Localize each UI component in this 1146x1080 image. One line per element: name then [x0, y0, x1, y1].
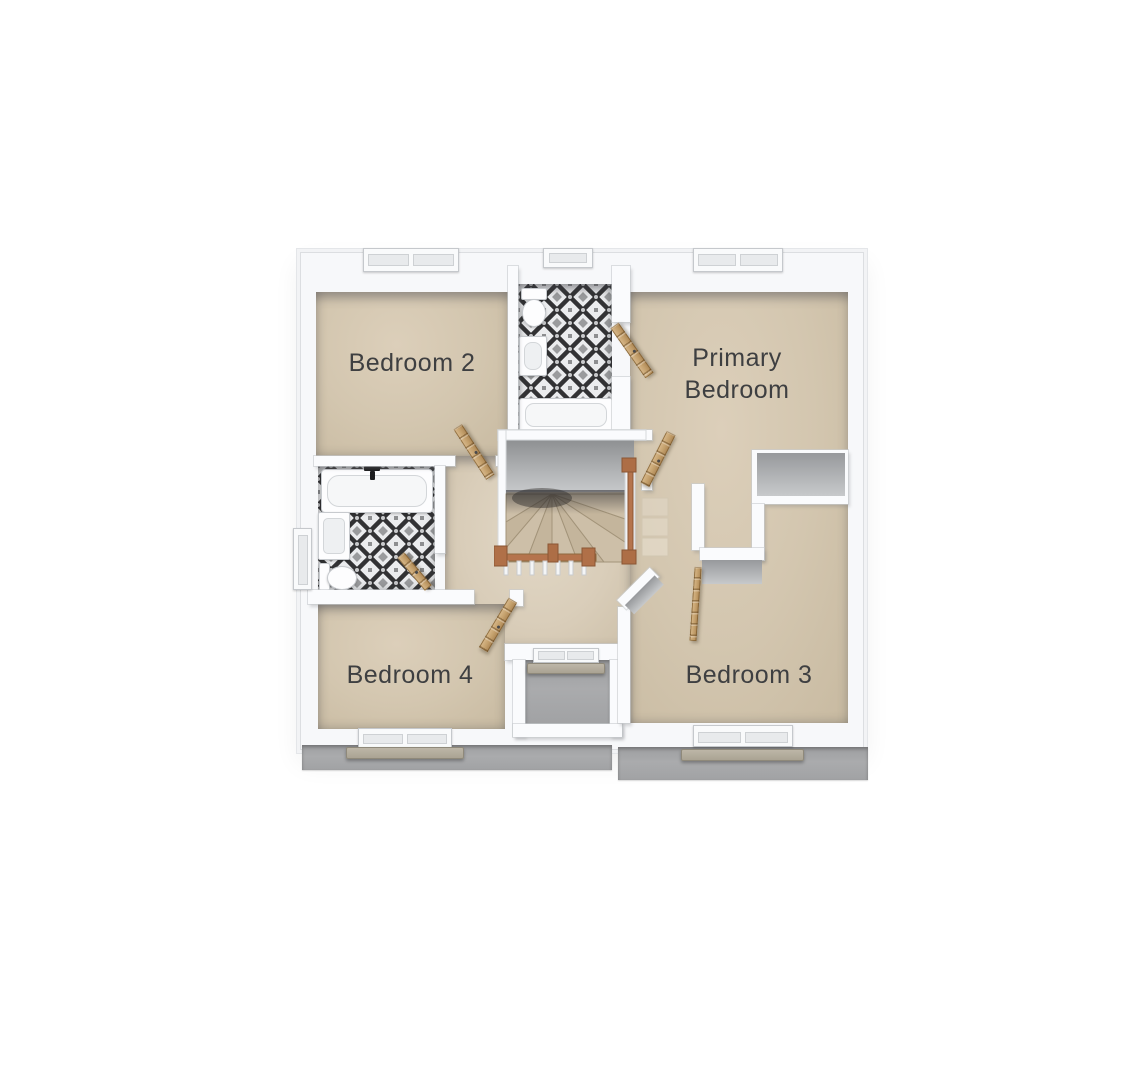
wall-bedroom3-left: [618, 607, 630, 723]
window-bedroom-4: [358, 728, 452, 748]
staircase: [494, 428, 676, 580]
bathtub-tap-spout: [370, 471, 375, 480]
bedroom-4-stone-sill: [346, 747, 464, 759]
wall-bedroom3-entry-top-face: [702, 560, 762, 584]
bay-bottom-wall: [513, 724, 622, 737]
landing-window: [533, 648, 599, 663]
bedroom-3-stone-sill: [681, 749, 804, 761]
window-bedroom-3: [693, 725, 793, 747]
room-label-bedroom-3: Bedroom 3: [669, 659, 829, 691]
bathroom-toilet: [327, 566, 357, 590]
ensuite-toilet: [522, 299, 546, 327]
wall-primary-south-stub: [692, 484, 704, 550]
window-primary-bedroom: [693, 248, 783, 272]
window-bathroom: [293, 528, 312, 590]
ensuite-basin-bowl: [524, 342, 542, 370]
floor-plan: Bedroom 2 Primary Bedroom Bedroom 4 Bedr…: [300, 252, 866, 786]
wall-divider-gray-face: [757, 453, 845, 496]
ensuite-bathtub-inner: [525, 403, 607, 427]
wall-bedroom3-entry-top: [700, 548, 764, 560]
wall-bathroom-bedroom4: [308, 590, 474, 604]
bathroom-basin-bowl: [323, 518, 345, 554]
wall-ensuite-primary-upper: [612, 266, 630, 322]
room-label-primary-bedroom: Primary Bedroom: [677, 342, 797, 406]
window-ensuite: [543, 248, 593, 268]
room-label-bedroom-4: Bedroom 4: [330, 659, 490, 691]
room-label-bedroom-2: Bedroom 2: [332, 347, 492, 379]
bathroom-bathtub-inner: [327, 475, 427, 507]
wall-bedroom2-bottom: [314, 456, 455, 466]
landing-window-stone-sill: [527, 663, 605, 674]
window-bedroom-2: [363, 248, 459, 272]
wall-bathroom-right: [435, 466, 445, 553]
